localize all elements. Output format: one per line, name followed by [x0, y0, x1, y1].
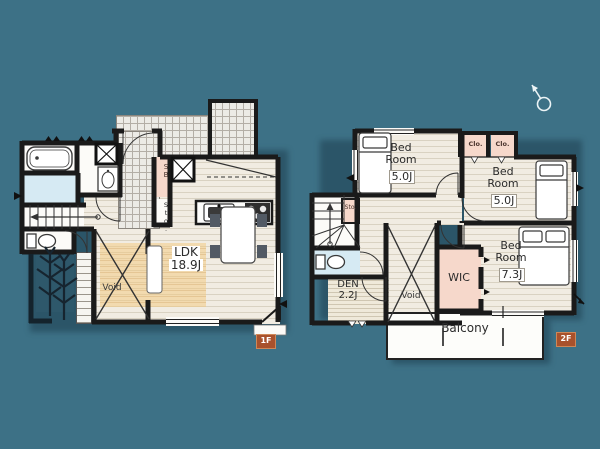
bedroom3-label: Bed Room — [494, 240, 528, 263]
den-label: DEN2.2J — [330, 280, 366, 301]
void-2f-label: Void — [392, 292, 430, 301]
void-1f-cross — [96, 231, 149, 319]
bedroom2-size: 5.0J — [490, 194, 518, 208]
closet2-label: Clo. — [491, 141, 514, 148]
north-arrow-icon — [532, 85, 551, 111]
bedroom1-size: 5.0J — [388, 170, 416, 184]
kitchen-hatch-lines — [206, 160, 276, 177]
storage-2f-label: Sto. — [342, 205, 359, 211]
wic-label: WIC — [441, 272, 477, 284]
floor-plan-canvas: LDK 18.9J Void SB Sto. 1F Bed Room 5.0J … — [0, 0, 600, 449]
single-bed-2-icon — [536, 161, 567, 219]
floor1-badge: 1F — [256, 334, 276, 349]
toilet-2f-icon — [316, 255, 345, 269]
toilet-1f-icon — [27, 234, 56, 248]
void-2f-cross — [388, 226, 435, 322]
closet1-label: Clo. — [464, 141, 487, 148]
tv-board-icon — [147, 246, 162, 293]
vent-marks-icon — [45, 136, 93, 141]
refrigerator-space-icon — [172, 158, 194, 181]
bathtub-icon — [27, 147, 72, 170]
storage-1f-label: Sto. — [156, 201, 169, 233]
garden-trees-icon — [37, 247, 77, 320]
bedroom1-label: Bed Room — [384, 142, 418, 165]
void-1f-label: Void — [92, 284, 132, 293]
ldk-label: LDK 18.9J — [162, 246, 210, 271]
bedroom3-size: 7.3J — [498, 268, 526, 282]
stairs-2f — [312, 195, 360, 248]
bedroom2-label: Bed Room — [486, 166, 520, 189]
floor2-badge: 2F — [556, 332, 576, 347]
washer-space-icon — [96, 144, 117, 164]
stairs-1f — [30, 205, 100, 229]
shoe-box-label: SB — [156, 163, 169, 179]
floor-plan-drawing — [0, 0, 600, 449]
dining-table-icon — [210, 207, 267, 263]
vanity-sink-icon — [98, 167, 118, 191]
balcony-label: Balcony — [420, 322, 510, 335]
